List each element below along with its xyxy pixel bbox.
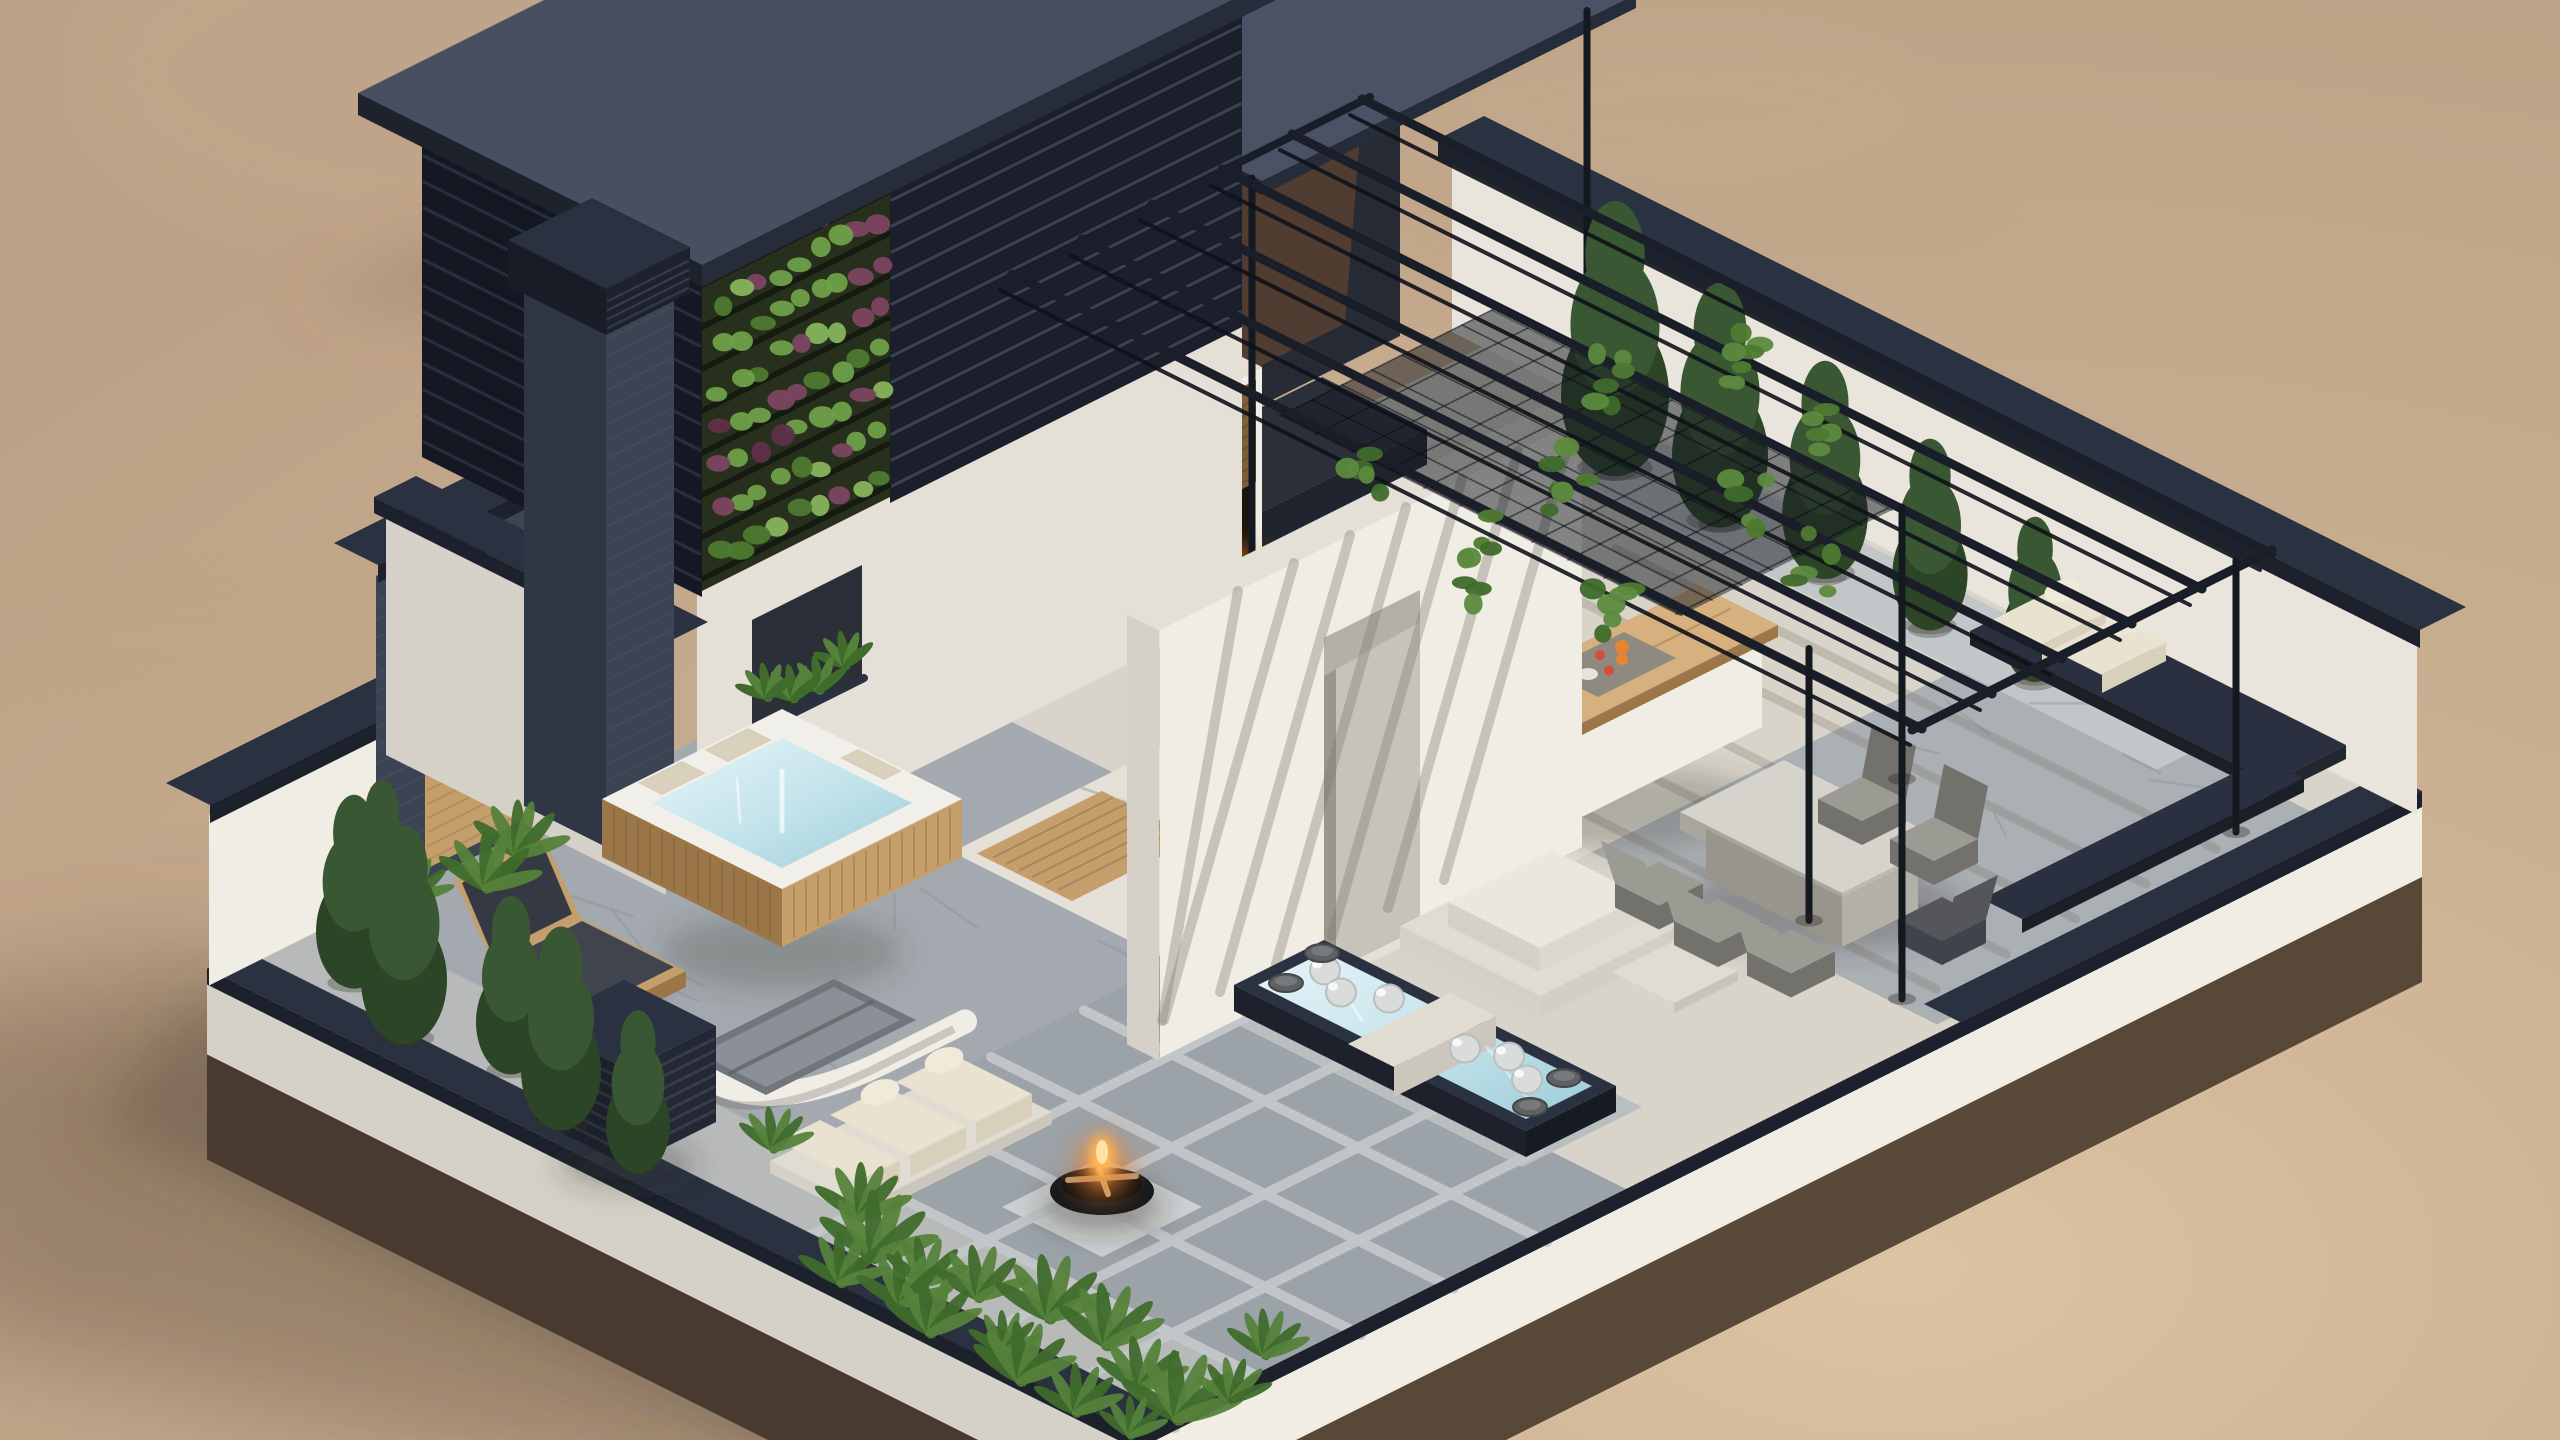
render-canvas — [0, 0, 2560, 1440]
isometric-backyard-render — [0, 0, 2560, 1440]
chimney-column — [508, 198, 690, 847]
